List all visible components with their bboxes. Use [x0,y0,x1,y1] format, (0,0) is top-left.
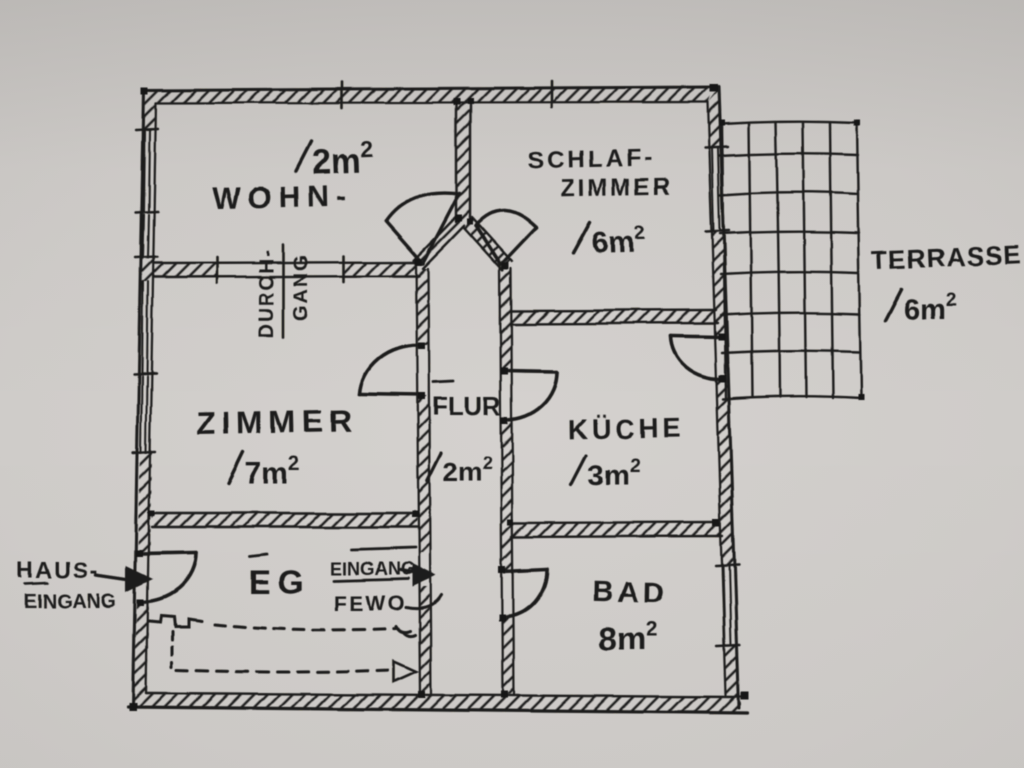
svg-text:6m2: 6m2 [591,221,646,259]
svg-text:7m2: 7m2 [245,453,299,490]
svg-text:ZIMMER: ZIMMER [560,173,673,202]
svg-text:WOHN-: WOHN- [213,179,354,215]
svg-text:DURCH-: DURCH- [256,248,278,339]
svg-text:6m2: 6m2 [904,290,957,326]
svg-text:8m2: 8m2 [599,618,657,657]
svg-text:3m2: 3m2 [588,456,641,492]
svg-text:TERRASSE: TERRASSE [872,239,1023,275]
svg-text:KÜCHE: KÜCHE [568,413,685,445]
svg-text:EINGANG: EINGANG [23,591,116,613]
svg-text:2m2: 2m2 [311,136,374,182]
svg-text:ZIMMER: ZIMMER [196,402,359,441]
svg-text:SCHLAF-: SCHLAF- [528,145,655,175]
svg-text:EINGANG: EINGANG [330,559,414,579]
svg-text:BAD: BAD [592,575,670,609]
svg-text:FEWO: FEWO [334,592,407,615]
svg-text:2m2: 2m2 [443,453,492,487]
svg-text:EG: EG [249,564,311,601]
svg-text:HAUS-: HAUS- [17,557,100,583]
svg-text:GANG: GANG [290,253,312,321]
svg-text:FLUR: FLUR [432,391,502,421]
